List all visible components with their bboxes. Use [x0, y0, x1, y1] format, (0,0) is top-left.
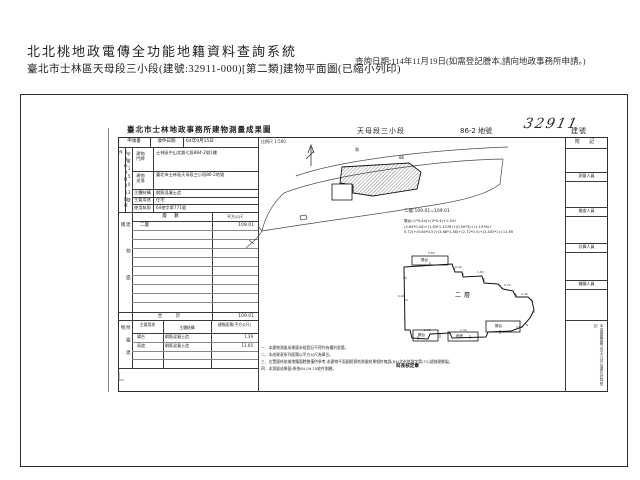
plan-dim: 0.44: [455, 266, 462, 269]
annex-table-bottom: [118, 368, 258, 369]
plan-dim: 1.63: [477, 271, 484, 274]
annex-row-line3: [132, 359, 258, 360]
area-table-top: [118, 212, 258, 213]
system-title: 北北桃地政電傳全功能地籍資料查詢系統: [27, 45, 297, 60]
strip-cell-calculator: 計算人員: [565, 245, 608, 250]
strip-line-a: [565, 148, 608, 149]
strip-note-label: 附 記: [565, 140, 608, 146]
calc-line-4: 0.72)+(0.64*0.5)+(3.68*1.36)+(2.72*0.5)+…: [404, 230, 513, 234]
map-lot-tag: 86: [399, 156, 404, 161]
note-line-2: 二、本成果表所列面積以平方公尺為單位。: [261, 353, 333, 357]
area-empty-line8: [132, 302, 258, 303]
area-empty-line2: [132, 248, 258, 249]
annex-side-divider: [132, 320, 133, 368]
annex-row-line2: [132, 351, 258, 352]
area-row-floor: 二層: [140, 223, 149, 228]
plan-balcony-top-left-label: 陽台: [421, 258, 428, 262]
strip-cell-draftsman: 繪圖人員: [565, 282, 608, 287]
application-label: 申請書: [118, 139, 150, 144]
sheet-title: 臺北市士林地政事務所建物測量成果圖: [127, 126, 272, 135]
annex-row2-use: 雨遮: [137, 344, 145, 349]
plan-dim: 0.72: [504, 284, 511, 287]
plan-balcony-bottom-left-label: 陽台: [418, 333, 425, 337]
annex-row2-structure: 鋼筋混凝土造: [165, 344, 189, 349]
map-scale-label: 比例尺 1:500: [261, 140, 286, 145]
area-empty-line3: [132, 257, 258, 258]
calc-line-3: (3.65*0.44)+(1.63*1.1078)+(0.50*3)+(1.19…: [404, 225, 492, 229]
annex-col-use: 主要用途: [133, 323, 162, 327]
strip-line-d2: [565, 252, 608, 253]
strip-cell-surveyor: 測量人員: [565, 174, 608, 179]
form-label-site: 建物坐落: [135, 174, 146, 184]
calc-line-1: 二層:109.01=109.01: [404, 209, 450, 214]
form-label-use: 主要用途: [134, 198, 151, 203]
plan-floor-label: 二層: [455, 293, 473, 300]
query-date: 查詢日期:114年11月19日(如需登記謄本,請向地政事務所申請。): [355, 57, 586, 67]
annex-table-top: [118, 320, 258, 321]
printout-page: 北北桃地政電傳全功能地籍資料查詢系統 臺北市士林區天母段三小段(建號:32911…: [0, 0, 640, 480]
plan-dim: 0.64: [398, 295, 405, 298]
strip-cell-inspector: 檢查人員: [565, 209, 608, 214]
form-value-structure: 鋼筋混凝土造: [156, 191, 181, 196]
received-date-value: 64年9月15日: [186, 139, 214, 144]
note-line-3: 三、位置圖係依據地籍圖謄繪僅供參考,本建物平面圖經實地測量結果相符無誤(64)北…: [261, 360, 452, 364]
document-subtitle: 臺北市士林區天母段三小段(建號:32911-000)[第二類]建物平面圖(已縮小…: [27, 64, 401, 76]
strip-line-c2: [565, 216, 608, 217]
calc-line-2: 陽台:(1*0.44)+(2*0.4)+1.34+: [404, 219, 457, 223]
area-col-floor: 層 數: [132, 214, 212, 219]
strip-line-e2: [565, 289, 608, 290]
annex-row1-area: 1.39: [211, 335, 253, 340]
divider-left-block: [258, 137, 259, 392]
strip-line-f: [565, 320, 608, 321]
plan-dim: 3.68: [516, 326, 523, 329]
annex-side-label: 附屬建物: [120, 325, 130, 365]
received-date-label: 收件日期: [150, 139, 183, 144]
form-label-structure: 主體結構: [134, 191, 151, 196]
section-chief-stamp: 科長核定章: [396, 364, 419, 369]
annex-row2-area: 11.65: [211, 344, 253, 349]
sheet-lot-number: 86-2 地號: [460, 127, 492, 135]
annex-row1-use: 陽台: [137, 335, 145, 340]
note-line-1: 一、本建物測量成果圖未經登記不得作為權利憑證。: [261, 346, 348, 350]
strip-line-b2: [565, 181, 608, 182]
annex-row1-structure: 鋼筋混凝土造: [165, 335, 189, 340]
form-value-license: 64使字第771號: [156, 206, 186, 211]
form-value-use: 住宅: [156, 198, 164, 203]
plan-dim: 2.40: [521, 293, 528, 296]
plan-dim: 2.72: [424, 329, 431, 332]
plan-dim: 1.34: [460, 329, 467, 332]
form-label-address: 建物門牌: [135, 152, 146, 162]
map-road-tag: 和: [355, 148, 359, 153]
area-empty-line5: [132, 275, 258, 276]
area-total-label: 合 計: [132, 314, 212, 319]
annex-row-line1: [132, 342, 258, 343]
form-value-address: 士林區中山北路七段884-2號1樓: [156, 151, 236, 156]
area-side-label: 建物面積: [120, 222, 130, 314]
annex-col-area: 建物面積(平方公尺): [212, 323, 257, 327]
form-label-divider: [153, 147, 154, 212]
strip-div2: [132, 147, 133, 212]
area-empty-line6: [132, 284, 258, 285]
form-header-div2: [183, 137, 184, 147]
annex-header-line: [132, 333, 258, 334]
sheet-edge-line: [108, 128, 109, 392]
area-empty-line1: [132, 239, 258, 240]
building-number-label: 建號: [571, 127, 587, 135]
area-empty-line4: [132, 266, 258, 267]
strip-bottom-note: 本成果圖面積以平方公尺為單位計算登記: [572, 324, 604, 386]
note-line-4: 四、本測量成果圖:係依64.09.15收件測繪。: [261, 367, 336, 371]
area-row-value: 109.01: [212, 223, 254, 228]
form-value-site: 臺北市士林區天母段三小段86-2地號: [156, 173, 236, 178]
form-header-underline: [118, 147, 258, 148]
area-col-unit: 平方公尺: [212, 215, 258, 220]
plan-dim: 3.65: [428, 252, 435, 255]
plan-balcony-bottom-right-label: 陽台: [495, 324, 502, 328]
sheet-section-name: 天母段三小段: [357, 127, 405, 135]
area-row-line: [132, 230, 258, 231]
annex-col-structure: 主體結構: [163, 326, 211, 330]
area-total-value: 109.01: [212, 314, 254, 319]
plan-canopy-label: 雨遮: [456, 334, 463, 338]
form-label-license: 使用執照: [134, 206, 151, 211]
docket-number-vertical: 字第1503號: [126, 152, 131, 210]
area-empty-line7: [132, 293, 258, 294]
